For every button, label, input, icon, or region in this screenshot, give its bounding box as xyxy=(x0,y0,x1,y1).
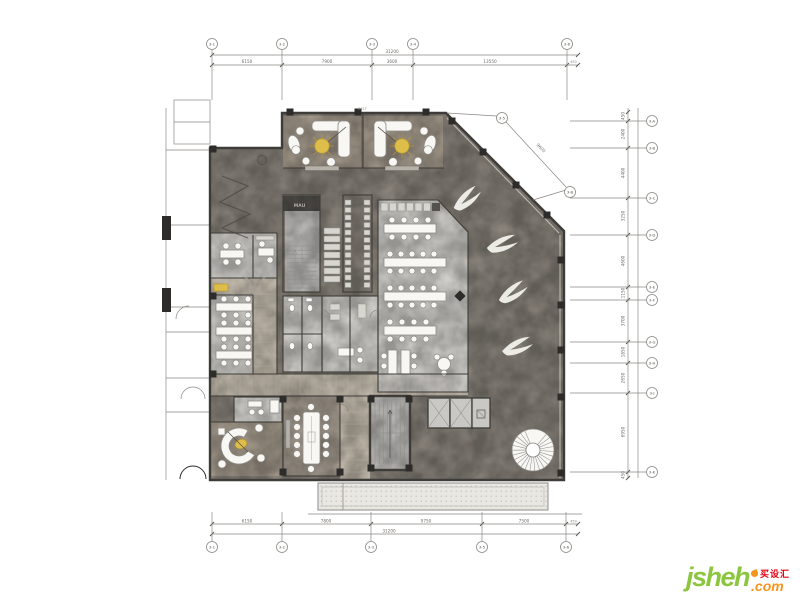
column xyxy=(449,118,456,125)
task-chair xyxy=(389,234,395,240)
task-chair xyxy=(413,217,419,223)
spiral-stair xyxy=(512,429,554,471)
task-chair xyxy=(425,234,431,240)
shelf-unit xyxy=(364,260,370,265)
grid-bubble-label: 3-B xyxy=(567,189,574,194)
dim-text: 450 xyxy=(621,112,626,120)
task-chair xyxy=(387,302,393,308)
column xyxy=(280,469,287,476)
task-chair xyxy=(245,320,251,326)
shelf-unit xyxy=(345,268,351,273)
task-chair xyxy=(233,344,239,350)
cabinet xyxy=(256,236,274,240)
task-chair xyxy=(381,353,387,359)
cabinet xyxy=(324,228,340,234)
task-chair xyxy=(221,312,227,318)
grid-bubble-label: 3-G xyxy=(649,339,656,344)
shelf-unit xyxy=(345,215,351,220)
task-chair xyxy=(398,302,404,308)
dim-text: 31200 xyxy=(385,49,399,54)
task-chair xyxy=(420,285,426,291)
task-chair xyxy=(401,217,407,223)
task-chair xyxy=(221,296,227,302)
pantry-counter xyxy=(398,203,405,211)
pantry-counter xyxy=(415,203,422,211)
task-chair xyxy=(389,217,395,223)
task-chair xyxy=(411,363,417,369)
grid-bubble-label: 3-1 xyxy=(209,41,216,46)
dim-text: 9750 xyxy=(421,518,432,523)
grid-bubble-label: 3-B xyxy=(649,145,656,150)
grid-bubble-label: 3-5 xyxy=(499,115,506,120)
task-chair xyxy=(423,319,429,325)
shelf-unit xyxy=(364,215,370,220)
window-box xyxy=(162,288,171,312)
column xyxy=(368,396,375,403)
dim-text: 3600 xyxy=(387,59,398,64)
grid-bubble-label: 3-3 xyxy=(369,41,376,46)
dim-text: 7800 xyxy=(321,518,332,523)
grid-bubble-label: 3-H xyxy=(649,360,656,365)
task-chair xyxy=(245,296,251,302)
dim-text: 3250 xyxy=(621,210,626,221)
task-chair xyxy=(387,251,393,257)
column xyxy=(558,394,565,401)
workstation-desk xyxy=(401,350,410,374)
grid-bubble-label: 3-5 xyxy=(479,544,486,549)
task-chair xyxy=(221,320,227,326)
pantry-counter xyxy=(424,203,431,211)
column xyxy=(558,257,565,264)
grid-bubble-label: 3-6 xyxy=(564,41,571,46)
dim-text: 1150 xyxy=(621,287,626,298)
grid-bubble-label: 3-F xyxy=(649,297,655,302)
dim-text: 13550 xyxy=(483,59,497,64)
dim-text: 7900 xyxy=(322,59,333,64)
column xyxy=(210,146,217,153)
grid-bubble-label: 3-A xyxy=(649,118,656,123)
column xyxy=(210,371,217,378)
cabinet xyxy=(324,252,340,258)
task-chair xyxy=(245,360,251,366)
workstation-bank xyxy=(384,292,446,301)
cabinet xyxy=(324,236,340,242)
leaf-icon xyxy=(750,569,759,578)
task-chair xyxy=(448,354,454,360)
task-chair xyxy=(387,268,393,274)
task-chair xyxy=(221,344,227,350)
task-chair xyxy=(233,320,239,326)
task-chair xyxy=(245,312,251,318)
cabinet xyxy=(324,244,340,250)
window-box xyxy=(162,216,171,240)
accent-desk xyxy=(214,284,228,291)
dim-text: 450 xyxy=(570,60,576,64)
workstation-bank xyxy=(384,258,446,267)
column xyxy=(558,470,565,477)
task-chair xyxy=(409,268,415,274)
grid-bubble-label: 3-3 xyxy=(368,544,375,549)
task-chair xyxy=(381,363,387,369)
dim-text: 450 xyxy=(570,519,576,523)
dim-text: 6150 xyxy=(242,59,253,64)
shelf-unit xyxy=(345,223,351,228)
task-chair xyxy=(387,319,393,325)
workstation-desk xyxy=(216,303,252,311)
watermark-tld: .com xyxy=(751,580,790,592)
adjacent-building-left xyxy=(162,100,210,480)
task-chair xyxy=(233,296,239,302)
task-chair xyxy=(431,251,437,257)
shelf-unit xyxy=(364,208,370,213)
dim-text: 6950 xyxy=(621,426,626,437)
shelf-unit xyxy=(345,260,351,265)
task-chair xyxy=(425,217,431,223)
grid-bubble-label: 3-2 xyxy=(279,544,286,549)
sliding-door xyxy=(305,166,339,171)
dim-text: 31200 xyxy=(382,529,396,534)
pantry-counter xyxy=(381,203,388,211)
task-chair xyxy=(398,251,404,257)
workstation-desk xyxy=(388,350,397,374)
double-door-swing xyxy=(181,387,205,399)
shelf-unit xyxy=(364,200,370,205)
shelf-unit xyxy=(364,245,370,250)
shelf-unit xyxy=(345,200,351,205)
shelf-unit xyxy=(364,238,370,243)
workstation-bank xyxy=(384,326,436,335)
column xyxy=(337,396,344,403)
grid-bubble-label: 3-2 xyxy=(279,41,286,46)
shelf-unit xyxy=(345,208,351,213)
office-desk xyxy=(258,248,274,256)
grid-bubble-label: 3-K xyxy=(649,469,656,474)
shelf-unit xyxy=(345,283,351,288)
cabinet xyxy=(324,268,340,274)
dim-text: 4600 xyxy=(621,255,626,266)
dim-text: 2650 xyxy=(621,372,626,383)
office-desk xyxy=(220,250,244,258)
shelf-unit xyxy=(364,223,370,228)
workstation-desk xyxy=(216,327,252,335)
shelf-unit xyxy=(345,253,351,258)
pantry-counter xyxy=(390,203,397,211)
task-chair xyxy=(398,268,404,274)
column xyxy=(287,109,294,116)
floor-plan-canvas: MAU 6427 31200615079003600135504503-13-2… xyxy=(0,0,800,600)
credenza xyxy=(286,420,290,448)
task-chair xyxy=(411,319,417,325)
task-chair xyxy=(233,336,239,342)
shelf-unit xyxy=(345,230,351,235)
task-chair xyxy=(431,268,437,274)
office-chair xyxy=(223,243,229,249)
machine-room xyxy=(472,398,490,428)
door-swing xyxy=(176,306,189,319)
office-chair xyxy=(267,257,273,263)
shelf-unit xyxy=(364,253,370,258)
task-chair xyxy=(423,336,429,342)
task-chair xyxy=(398,285,404,291)
pantry-appliance xyxy=(432,203,440,211)
entrance-canopy xyxy=(308,483,582,514)
dim-text: 7500 xyxy=(519,518,530,523)
pantry-counter xyxy=(407,203,414,211)
workstation-desk xyxy=(216,351,252,359)
grid-bubble-label: 3-C xyxy=(649,195,656,200)
task-chair xyxy=(420,268,426,274)
column xyxy=(337,469,344,476)
core-unit-label: MAU xyxy=(294,203,306,209)
column xyxy=(280,396,287,403)
column xyxy=(558,302,565,309)
grid-bubble-label: 3-6 xyxy=(563,544,570,549)
cabinet xyxy=(324,260,340,266)
office-chair xyxy=(259,241,265,247)
task-chair xyxy=(411,353,417,359)
task-chair xyxy=(245,336,251,342)
watermark-logo: jsheh 买设汇 .com xyxy=(686,564,790,592)
column xyxy=(558,347,565,354)
task-chair xyxy=(413,234,419,240)
shelf-unit xyxy=(364,283,370,288)
column xyxy=(513,182,520,189)
shelf-unit xyxy=(345,245,351,250)
shelf-unit xyxy=(364,268,370,273)
task-chair xyxy=(411,336,417,342)
watermark-brand: jsheh xyxy=(686,564,749,590)
grid-bubble-label: 3-J xyxy=(649,390,654,395)
grid-bubble-label: 3-D xyxy=(649,232,656,237)
task-chair xyxy=(431,302,437,308)
task-chair xyxy=(409,302,415,308)
task-chair xyxy=(233,312,239,318)
office-chair xyxy=(235,259,241,265)
task-chair xyxy=(233,360,239,366)
task-chair xyxy=(221,336,227,342)
grid-bubble-label: 3-E xyxy=(649,284,656,289)
dim-text: 4400 xyxy=(621,167,626,178)
shelf-unit xyxy=(345,238,351,243)
diagonal-dim-text: 9600 xyxy=(536,142,547,153)
round-table xyxy=(438,358,451,371)
grid-bubble-label: 3-4 xyxy=(410,41,417,46)
task-chair xyxy=(409,285,415,291)
task-chair xyxy=(245,344,251,350)
shelf-unit xyxy=(345,275,351,280)
grid-extension xyxy=(533,190,566,200)
task-chair xyxy=(399,319,405,325)
column xyxy=(544,212,551,219)
column xyxy=(406,396,413,403)
sliding-door xyxy=(385,166,419,171)
shelf-unit xyxy=(364,275,370,280)
task-chair xyxy=(387,336,393,342)
grid-extension xyxy=(447,113,497,116)
task-chair xyxy=(441,370,447,376)
grid-bubble-label: 3-1 xyxy=(209,544,216,549)
office-chair xyxy=(223,259,229,265)
task-chair xyxy=(420,302,426,308)
task-chair xyxy=(431,285,437,291)
floor-plan-drawing: MAU 6427 31200615079003600135504503-13-2… xyxy=(0,0,800,600)
dim-line xyxy=(506,122,566,187)
dim-text: 3700 xyxy=(621,315,626,326)
shelf-unit xyxy=(364,230,370,235)
task-chair xyxy=(221,360,227,366)
column xyxy=(480,149,487,156)
dim-text: 2400 xyxy=(621,128,626,139)
task-chair xyxy=(399,336,405,342)
column xyxy=(423,109,430,116)
task-chair xyxy=(409,251,415,257)
office-chair xyxy=(235,243,241,249)
task-chair xyxy=(401,234,407,240)
task-chair xyxy=(387,285,393,291)
wall-tag: 6427 xyxy=(358,107,367,111)
cabinet xyxy=(324,276,340,282)
dim-text: 1850 xyxy=(621,346,626,357)
task-chair xyxy=(420,251,426,257)
entrance-door-swing xyxy=(180,466,206,479)
dim-text: 6150 xyxy=(242,518,253,523)
column xyxy=(368,465,375,472)
column xyxy=(406,465,413,472)
task-chair xyxy=(434,354,440,360)
workstation-bank xyxy=(384,224,436,233)
column xyxy=(210,293,217,300)
